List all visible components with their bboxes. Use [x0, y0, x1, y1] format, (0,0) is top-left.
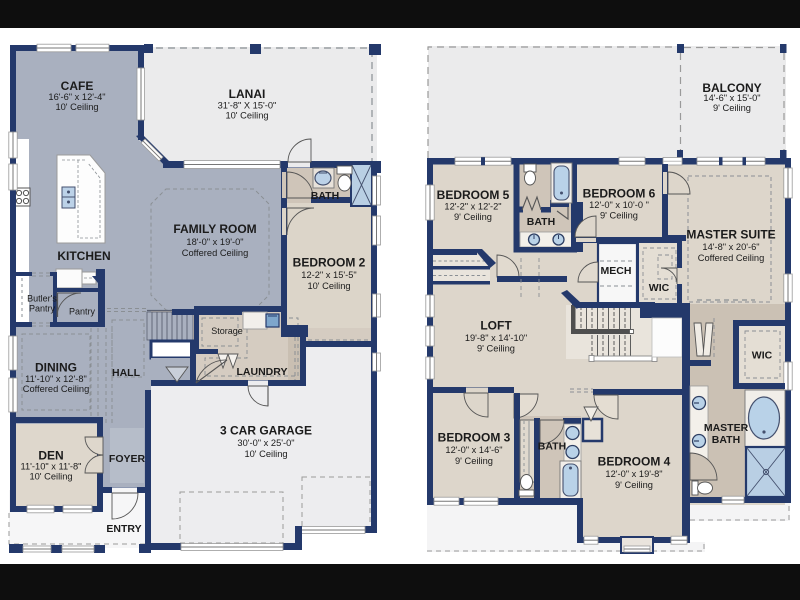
svg-text:11'-10" x 12'-8": 11'-10" x 12'-8"	[25, 374, 87, 384]
svg-text:10' Ceiling: 10' Ceiling	[55, 102, 98, 112]
svg-text:11'-10" x 11'-8": 11'-10" x 11'-8"	[21, 462, 82, 472]
svg-text:9' Ceiling: 9' Ceiling	[455, 456, 493, 466]
svg-text:12'-0" x 14'-6": 12'-0" x 14'-6"	[445, 445, 502, 455]
svg-text:FOYER: FOYER	[109, 453, 146, 465]
svg-text:18'-0" x 19'-0": 18'-0" x 19'-0"	[186, 237, 243, 247]
svg-text:BEDROOM 3: BEDROOM 3	[438, 431, 511, 445]
svg-text:9' Ceiling: 9' Ceiling	[454, 212, 492, 222]
svg-text:MASTER: MASTER	[704, 422, 749, 434]
svg-text:LAUNDRY: LAUNDRY	[237, 366, 288, 378]
svg-text:10' Ceiling: 10' Ceiling	[225, 111, 268, 121]
svg-text:MECH: MECH	[601, 265, 632, 277]
svg-text:LANAI: LANAI	[229, 87, 266, 101]
svg-text:WIC: WIC	[752, 350, 773, 362]
svg-text:DINING: DINING	[35, 361, 77, 375]
svg-text:10' Ceiling: 10' Ceiling	[29, 472, 72, 482]
svg-text:Pantry: Pantry	[69, 307, 96, 317]
svg-text:CAFE: CAFE	[61, 79, 94, 93]
svg-text:12'-0" x 10'-0 ": 12'-0" x 10'-0 "	[589, 200, 649, 210]
svg-text:12'-0" x 19'-8": 12'-0" x 19'-8"	[605, 469, 662, 479]
svg-text:BATH: BATH	[311, 190, 339, 202]
svg-text:10' Ceiling: 10' Ceiling	[244, 449, 287, 459]
svg-text:BEDROOM 6: BEDROOM 6	[583, 187, 656, 201]
svg-text:MASTER SUITE: MASTER SUITE	[686, 228, 775, 242]
svg-text:Coffered Ceiling: Coffered Ceiling	[182, 248, 249, 258]
svg-text:FAMILY ROOM: FAMILY ROOM	[173, 222, 256, 236]
svg-text:Coffered Ceiling: Coffered Ceiling	[698, 253, 765, 263]
svg-text:30'-0" x 25'-0": 30'-0" x 25'-0"	[237, 438, 294, 448]
svg-text:HALL: HALL	[112, 367, 141, 379]
svg-text:Pantry: Pantry	[29, 304, 56, 314]
svg-text:ENTRY: ENTRY	[106, 523, 141, 535]
svg-text:12-2" x 15'-5": 12-2" x 15'-5"	[301, 270, 356, 280]
svg-text:BATH: BATH	[538, 441, 566, 453]
svg-text:Butler's: Butler's	[27, 294, 57, 304]
svg-text:9' Ceiling: 9' Ceiling	[615, 480, 653, 490]
svg-text:14'-8" x 20'-6": 14'-8" x 20'-6"	[702, 242, 759, 252]
svg-text:WIC: WIC	[649, 282, 670, 294]
svg-text:3 CAR GARAGE: 3 CAR GARAGE	[220, 424, 312, 438]
svg-text:12'-2" x 12'-2": 12'-2" x 12'-2"	[444, 202, 501, 212]
svg-text:KITCHEN: KITCHEN	[57, 249, 110, 263]
svg-text:BEDROOM 5: BEDROOM 5	[437, 188, 510, 202]
svg-text:31'-8" X 15'-0": 31'-8" X 15'-0"	[218, 101, 277, 111]
svg-text:BEDROOM 4: BEDROOM 4	[598, 455, 671, 469]
svg-text:14'-6" x 15'-0": 14'-6" x 15'-0"	[703, 93, 760, 103]
svg-text:16'-6" x 12'-4": 16'-6" x 12'-4"	[48, 92, 105, 102]
svg-text:BATH: BATH	[527, 216, 555, 228]
svg-text:BEDROOM 2: BEDROOM 2	[293, 256, 366, 270]
svg-text:10' Ceiling: 10' Ceiling	[307, 281, 350, 291]
svg-text:19'-8" x 14'-10": 19'-8" x 14'-10"	[465, 333, 527, 343]
svg-text:DEN: DEN	[38, 449, 63, 463]
svg-text:9' Ceiling: 9' Ceiling	[600, 211, 638, 221]
svg-text:LOFT: LOFT	[480, 319, 512, 333]
svg-text:9' Ceiling: 9' Ceiling	[477, 344, 515, 354]
svg-text:Coffered Ceiling: Coffered Ceiling	[23, 384, 90, 394]
svg-text:9' Ceiling: 9' Ceiling	[713, 103, 751, 113]
svg-text:BATH: BATH	[712, 434, 740, 446]
svg-text:Storage: Storage	[211, 326, 243, 336]
